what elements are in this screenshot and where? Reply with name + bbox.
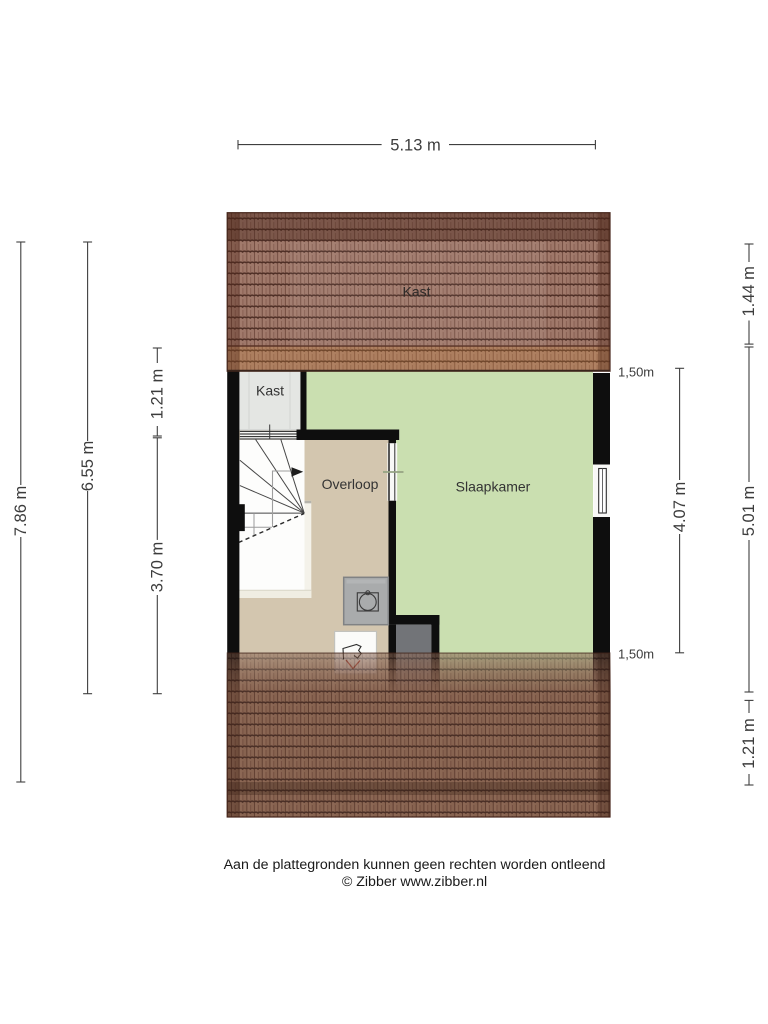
svg-text:© Zibber www.zibber.nl: © Zibber www.zibber.nl	[342, 874, 487, 890]
svg-text:1,50m: 1,50m	[618, 647, 654, 662]
svg-text:Slaapkamer: Slaapkamer	[456, 479, 531, 495]
svg-text:3.70 m: 3.70 m	[148, 542, 166, 592]
svg-text:1.21 m: 1.21 m	[740, 718, 758, 768]
svg-text:7.86 m: 7.86 m	[12, 486, 30, 536]
svg-text:Overloop: Overloop	[322, 476, 379, 492]
svg-text:4.07 m: 4.07 m	[671, 482, 689, 532]
svg-text:Kast: Kast	[256, 383, 284, 399]
svg-text:5.13 m: 5.13 m	[390, 137, 440, 155]
svg-text:6.55 m: 6.55 m	[79, 441, 97, 491]
svg-text:Kast: Kast	[402, 284, 430, 300]
svg-text:Aan de plattegronden kunnen ge: Aan de plattegronden kunnen geen rechten…	[224, 857, 606, 873]
svg-text:1.44 m: 1.44 m	[740, 266, 758, 316]
svg-text:5.01 m: 5.01 m	[740, 486, 758, 536]
svg-text:1.21 m: 1.21 m	[148, 369, 166, 419]
svg-text:1,50m: 1,50m	[618, 365, 654, 380]
